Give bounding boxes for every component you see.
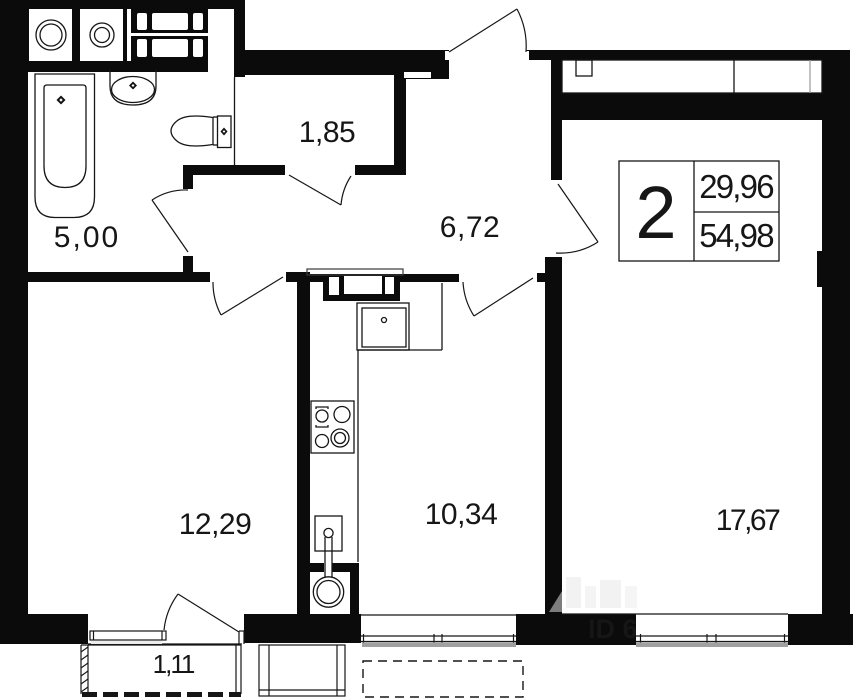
svg-text:1,85: 1,85: [299, 116, 355, 149]
svg-text:10,34: 10,34: [425, 498, 498, 531]
svg-text:6,72: 6,72: [440, 211, 500, 244]
svg-text:5,00: 5,00: [54, 221, 120, 254]
svg-text:54,98: 54,98: [699, 217, 773, 254]
svg-text:2: 2: [635, 171, 676, 254]
svg-text:1,11: 1,11: [153, 649, 195, 679]
svg-text:ID 6: ID 6: [588, 614, 638, 644]
svg-text:29,96: 29,96: [699, 168, 773, 205]
svg-text:17,67: 17,67: [716, 504, 780, 537]
svg-text:12,29: 12,29: [179, 508, 252, 541]
